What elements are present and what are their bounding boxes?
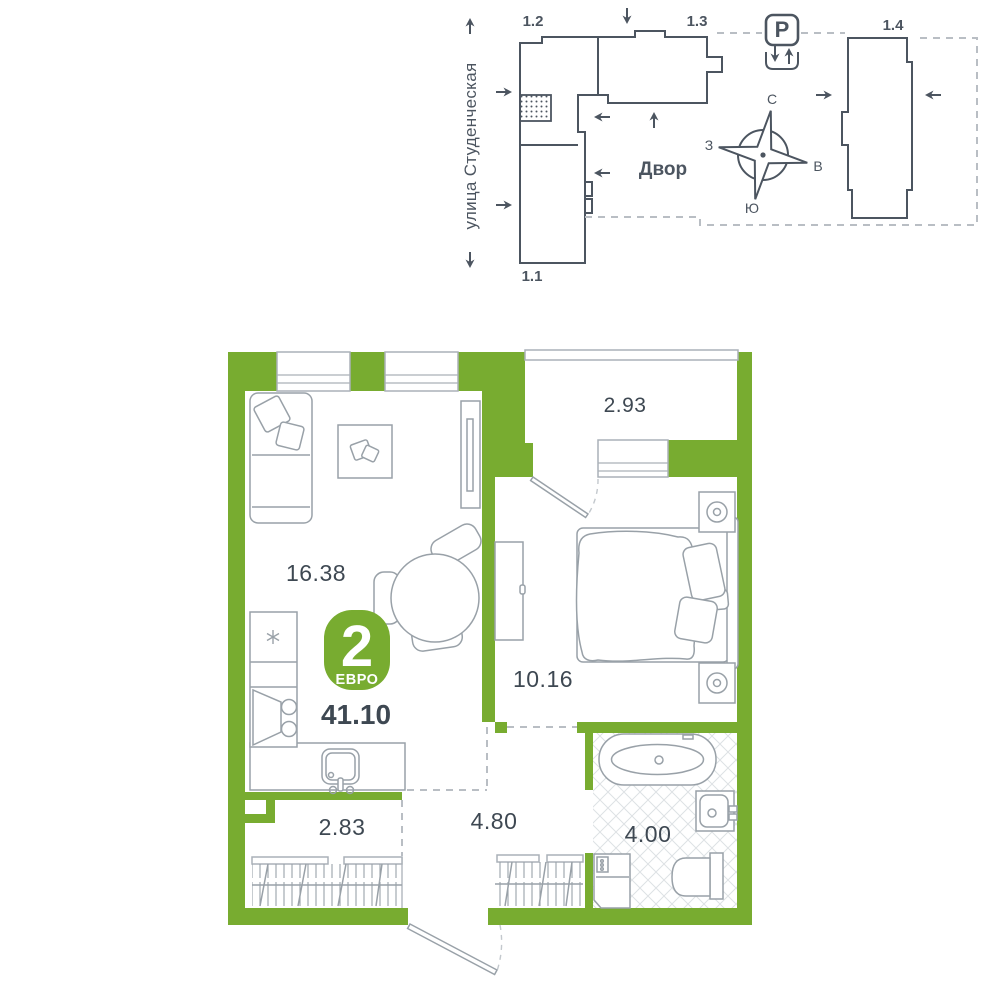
street-arrow-down-icon [466,252,475,268]
living-room-furniture [250,393,485,794]
bed-headboard [727,517,738,669]
entrance-door-swing-arc [497,925,502,971]
wall-living-bedroom [482,446,495,722]
compass-south-label: Ю [745,200,759,216]
balcony-glazing [525,350,738,360]
tv-unit [461,401,480,508]
bed [577,517,738,669]
wall-right [737,352,752,925]
tv-screen [467,419,473,491]
wall-bathroom-left [585,733,593,790]
building-label-1-3: 1.3 [687,13,708,30]
wardrobe-cabinet [495,542,525,640]
hallway-furniture [495,855,583,906]
bathtub [599,734,716,785]
parking-arrow-down-icon [771,46,780,62]
wall-bathroom-left [585,853,593,909]
room-area-label-bedroom: 10.16 [513,666,573,692]
street-arrow-up-icon [466,18,475,34]
total-area-label: 41.10 [321,699,391,730]
building-porch [585,199,592,213]
floorplan-page: улица Студенческая 1.1 1.2 1.3 1.4 [0,0,1000,1000]
compass-center-dot [760,152,765,157]
dining-table [374,520,485,652]
apartment-location-marker [520,95,551,121]
wall-balcony-bedroom [668,440,738,477]
nightstand [699,492,735,532]
building-outline-1-4 [842,38,912,218]
site-plan: улица Студенческая 1.1 1.2 1.3 1.4 [461,8,977,285]
entrance-arrow-icon [650,112,659,128]
balcony-door [531,477,588,518]
apartment-type-badge: 2 ЕВРО 41.10 [321,610,391,730]
wall-bedroom-bottom [577,722,738,733]
closet-shelf [497,855,539,862]
room-area-label-wardrobe: 2.83 [319,814,366,840]
bed-blanket [577,531,696,661]
badge-type-label: ЕВРО [336,672,379,688]
street-label: улица Студенческая [461,62,480,229]
compass-east-label: В [813,158,822,174]
entrance-arrow-icon [925,91,941,100]
sofa-pillow [275,421,304,450]
toilet [672,853,723,899]
building-label-1-1: 1.1 [522,268,543,285]
window [385,352,458,391]
entrance-door [408,924,497,975]
floor-plan: 16.38 10.16 2.93 2.83 4.80 4.00 2 ЕВРО 4… [228,350,752,975]
wall-bottom [228,908,408,925]
floorplan-canvas: улица Студенческая 1.1 1.2 1.3 1.4 [0,0,1000,1000]
toilet-tank [710,853,723,899]
toilet-bowl [672,858,710,896]
wardrobe-room-furniture [252,857,402,906]
kitchen-zone-dashed [407,727,487,790]
wall-top [228,352,525,391]
washbasin [696,791,737,831]
wall-bottom [488,908,752,925]
building-outline-1-1-1-2 [520,37,598,263]
bed-pillow [674,596,719,644]
entrance-arrow-icon [594,113,610,122]
wall-wardrobe-top [245,792,402,800]
room-area-label-bathroom: 4.00 [625,821,672,847]
room-area-label-hallway: 4.80 [471,808,518,834]
closet-shelf [344,857,402,864]
closet-shelf [547,855,583,862]
room-area-label-balcony: 2.93 [604,394,647,417]
compass-north-label: С [767,91,777,107]
entrance-arrow-icon [623,8,632,24]
badge-room-count: 2 [341,614,373,679]
faucet-icon [729,806,737,812]
building-label-1-4: 1.4 [883,17,905,34]
wall-left [228,352,245,925]
dining-table-top [391,554,479,642]
wall-duct [245,814,275,823]
parking-arrow-up-icon [785,48,794,64]
parking-bracket [766,52,798,69]
faucet-icon [338,778,343,791]
entrance-arrow-icon [816,91,832,100]
bathtub-overflow [683,735,693,739]
parking-icon: P [766,15,798,69]
window [277,352,350,391]
coffee-table [338,425,392,478]
washing-machine [594,854,630,908]
entrance-arrow-icon [496,201,512,210]
wall-bedroom-bottom [495,722,507,733]
building-label-1-2: 1.2 [523,13,544,30]
sofa [250,393,312,523]
cabinet-handle [520,585,525,594]
entrance-arrow-icon [496,88,512,97]
balcony-door-swing-arc [589,479,598,513]
nightstand [699,663,735,703]
compass-icon: С Ю З В [705,91,823,216]
entrance-arrow-icon [594,169,610,178]
site-boundary-dashed [585,38,977,225]
wall-duct [266,800,275,816]
compass-west-label: З [705,137,713,153]
room-area-label-living: 16.38 [286,560,346,586]
building-outline-1-3 [598,31,722,103]
building-porch [585,182,592,196]
closet-shelf [252,857,328,864]
courtyard-label: Двор [639,159,687,180]
parking-letter: P [775,17,790,42]
